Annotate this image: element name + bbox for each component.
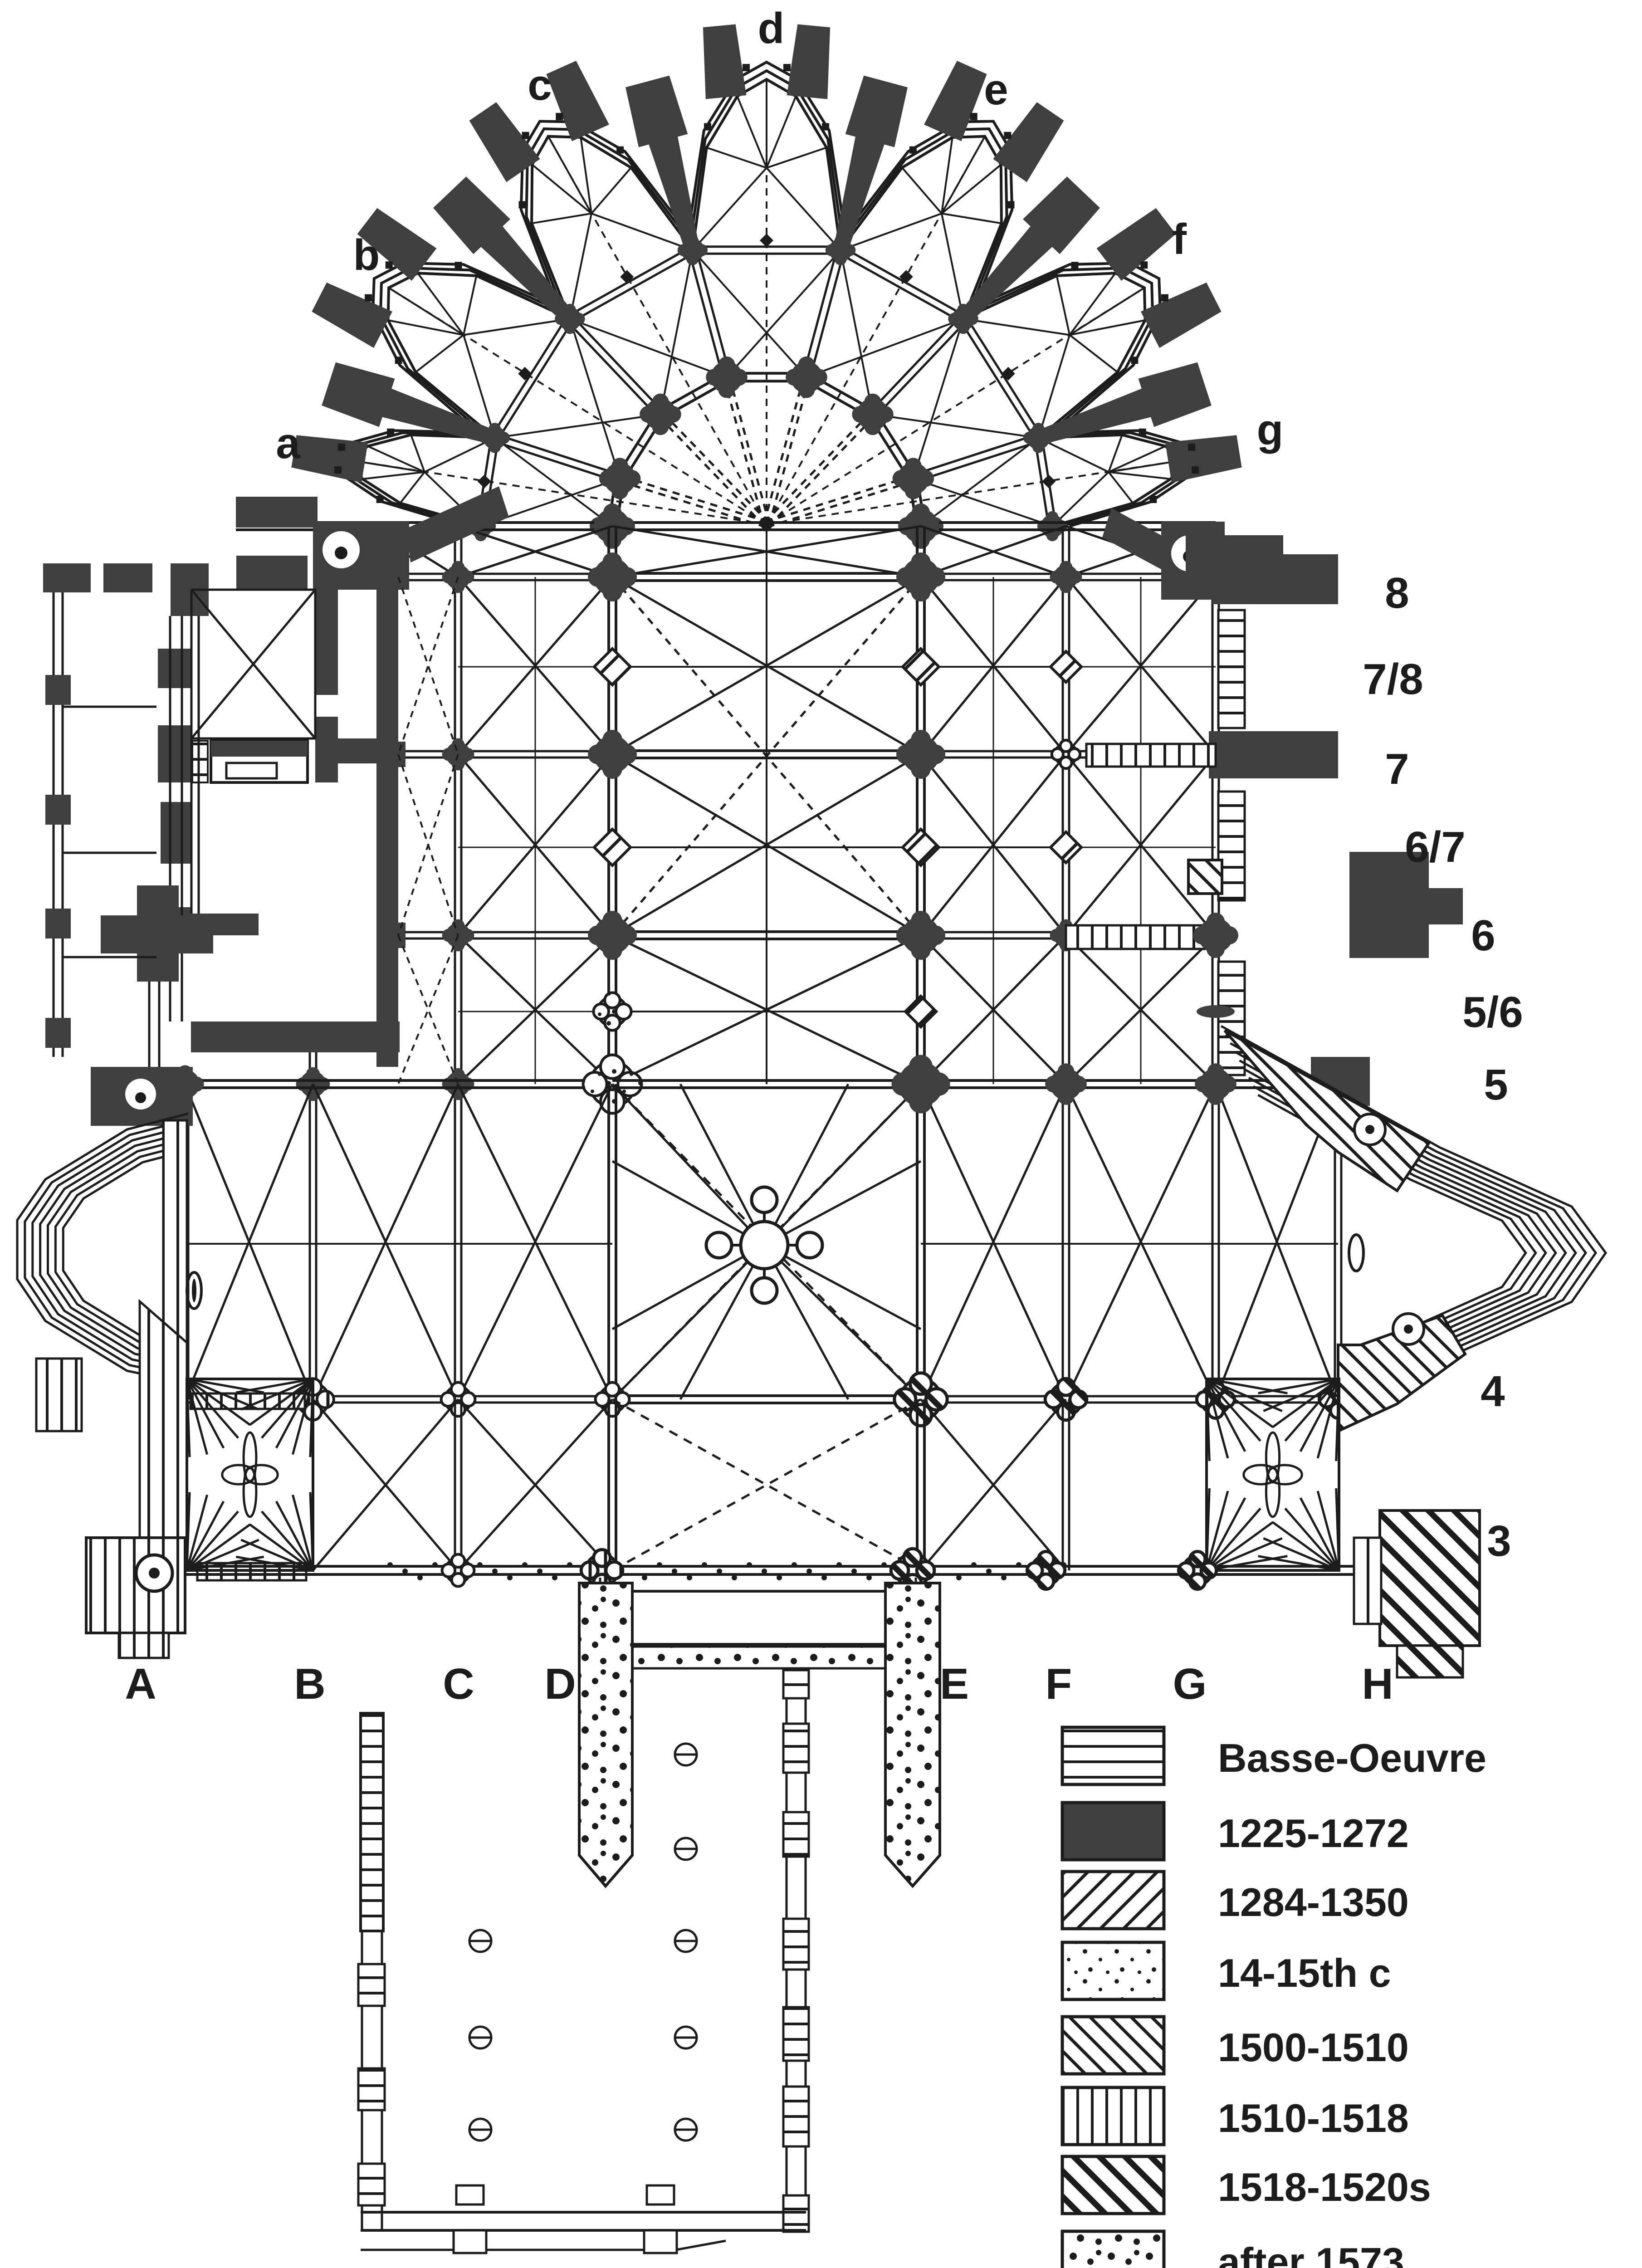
svg-text:A: A	[125, 1660, 156, 1708]
svg-text:1284-1350: 1284-1350	[1218, 1880, 1409, 1925]
svg-text:b: b	[353, 231, 380, 279]
svg-text:F: F	[1046, 1660, 1072, 1708]
svg-text:8: 8	[1385, 569, 1409, 617]
svg-text:5/6: 5/6	[1462, 988, 1523, 1036]
svg-text:e: e	[984, 65, 1008, 114]
svg-text:1518-1520s: 1518-1520s	[1218, 2165, 1431, 2209]
svg-text:d: d	[758, 4, 785, 53]
svg-text:after 1573: after 1573	[1218, 2239, 1404, 2268]
svg-text:6/7: 6/7	[1405, 823, 1465, 871]
svg-text:7: 7	[1385, 745, 1409, 793]
svg-text:B: B	[294, 1660, 325, 1708]
svg-text:5: 5	[1484, 1061, 1508, 1109]
svg-text:1225-1272: 1225-1272	[1218, 1811, 1409, 1856]
svg-text:g: g	[1257, 406, 1284, 454]
svg-text:C: C	[443, 1660, 474, 1708]
svg-text:G: G	[1173, 1660, 1207, 1708]
svg-text:14-15th c: 14-15th c	[1218, 1950, 1391, 1995]
svg-text:H: H	[1362, 1660, 1393, 1708]
svg-text:4: 4	[1481, 1367, 1505, 1416]
svg-text:D: D	[544, 1660, 576, 1708]
svg-text:f: f	[1172, 215, 1187, 264]
svg-text:1510-1518: 1510-1518	[1218, 2096, 1409, 2141]
svg-text:7/8: 7/8	[1363, 655, 1423, 704]
svg-text:3: 3	[1487, 1517, 1511, 1565]
svg-text:E: E	[940, 1660, 969, 1708]
svg-text:6: 6	[1471, 911, 1495, 960]
svg-text:c: c	[528, 61, 552, 109]
svg-text:1500-1510: 1500-1510	[1218, 2025, 1409, 2070]
svg-text:Basse-Oeuvre: Basse-Oeuvre	[1218, 1735, 1486, 1780]
svg-text:a: a	[276, 419, 300, 468]
